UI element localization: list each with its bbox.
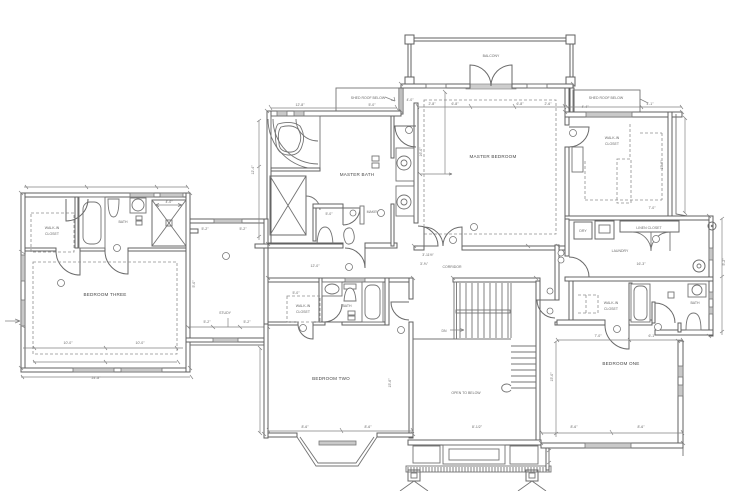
svg-text:15'-0": 15'-0" [550, 372, 554, 382]
svg-text:WALK-IN: WALK-IN [296, 304, 311, 308]
svg-text:15'-6": 15'-6" [388, 378, 392, 388]
svg-text:12'-0": 12'-0" [311, 264, 321, 268]
svg-text:8'-6": 8'-6" [302, 425, 310, 429]
svg-text:CLOSET: CLOSET [604, 307, 619, 311]
svg-text:BALCONY: BALCONY [483, 54, 500, 58]
svg-text:2'-6": 2'-6" [545, 102, 553, 106]
svg-text:12'-4": 12'-4" [251, 165, 255, 175]
svg-text:BEDROOM THREE: BEDROOM THREE [83, 292, 126, 297]
svg-text:8'-6": 8'-6" [571, 425, 579, 429]
svg-text:5'-0": 5'-0" [192, 280, 196, 288]
svg-text:7'-0": 7'-0" [595, 334, 603, 338]
svg-text:24'-8": 24'-8" [92, 376, 102, 380]
svg-text:7'-0": 7'-0" [649, 206, 657, 210]
svg-text:MASTER BATH: MASTER BATH [340, 172, 375, 177]
svg-text:5'-2": 5'-2" [244, 320, 252, 324]
svg-text:2'-8": 2'-8" [429, 102, 437, 106]
svg-text:4'-0": 4'-0" [407, 98, 415, 102]
svg-text:5'-2": 5'-2" [240, 227, 248, 231]
svg-text:5'-0": 5'-0" [293, 291, 301, 295]
svg-text:WALK-IN: WALK-IN [45, 226, 60, 230]
svg-text:10'-0": 10'-0" [136, 341, 146, 345]
svg-text:LAUNDRY: LAUNDRY [612, 249, 629, 253]
svg-text:CORRIDOR: CORRIDOR [442, 265, 462, 269]
svg-text:6'-8": 6'-8" [517, 102, 525, 106]
svg-text:5'-0": 5'-0" [326, 212, 334, 216]
svg-text:DN: DN [441, 329, 447, 333]
svg-text:8'-6": 8'-6" [365, 425, 373, 429]
svg-text:3'-11½": 3'-11½" [422, 253, 434, 257]
svg-text:3'-⅝": 3'-⅝" [420, 262, 429, 266]
svg-text:CLOSET: CLOSET [45, 232, 60, 236]
svg-text:BATH: BATH [118, 220, 128, 224]
svg-text:6'-8": 6'-8" [452, 102, 460, 106]
svg-text:10'-0": 10'-0" [64, 341, 74, 345]
svg-text:SHED ROOF BELOW: SHED ROOF BELOW [589, 96, 624, 100]
svg-text:BATH: BATH [342, 304, 352, 308]
svg-text:16'-0": 16'-0" [419, 147, 423, 157]
svg-text:DRY: DRY [579, 229, 587, 233]
svg-text:WALK-IN: WALK-IN [605, 136, 620, 140]
svg-text:SHED ROOF BELOW: SHED ROOF BELOW [351, 96, 386, 100]
svg-text:5'-2": 5'-2" [202, 227, 210, 231]
svg-text:LINEN CLOSET: LINEN CLOSET [636, 226, 662, 230]
svg-text:CLOSET: CLOSET [605, 142, 620, 146]
svg-text:CLOSET: CLOSET [296, 310, 311, 314]
svg-text:5'-2": 5'-2" [722, 258, 726, 266]
svg-text:4'-0": 4'-0" [166, 200, 174, 204]
svg-text:6'-1": 6'-1" [649, 334, 657, 338]
svg-text:12'-8": 12'-8" [296, 103, 306, 107]
svg-text:8'-6": 8'-6" [638, 425, 646, 429]
svg-text:BEDROOM ONE: BEDROOM ONE [602, 361, 639, 366]
svg-text:5'-0": 5'-0" [369, 103, 377, 107]
svg-text:OPEN TO BELOW: OPEN TO BELOW [451, 391, 481, 395]
svg-text:STUDY: STUDY [219, 311, 232, 315]
svg-text:8'-1/2": 8'-1/2" [472, 425, 483, 429]
svg-text:MASTER BEDROOM: MASTER BEDROOM [470, 154, 517, 159]
svg-text:BATH: BATH [690, 301, 700, 305]
svg-text:5'-2": 5'-2" [204, 320, 212, 324]
svg-text:15'-9": 15'-9" [660, 160, 664, 170]
svg-text:WALK-IN: WALK-IN [604, 301, 619, 305]
svg-text:BEDROOM TWO: BEDROOM TWO [312, 376, 350, 381]
svg-text:16'-3": 16'-3" [637, 262, 647, 266]
